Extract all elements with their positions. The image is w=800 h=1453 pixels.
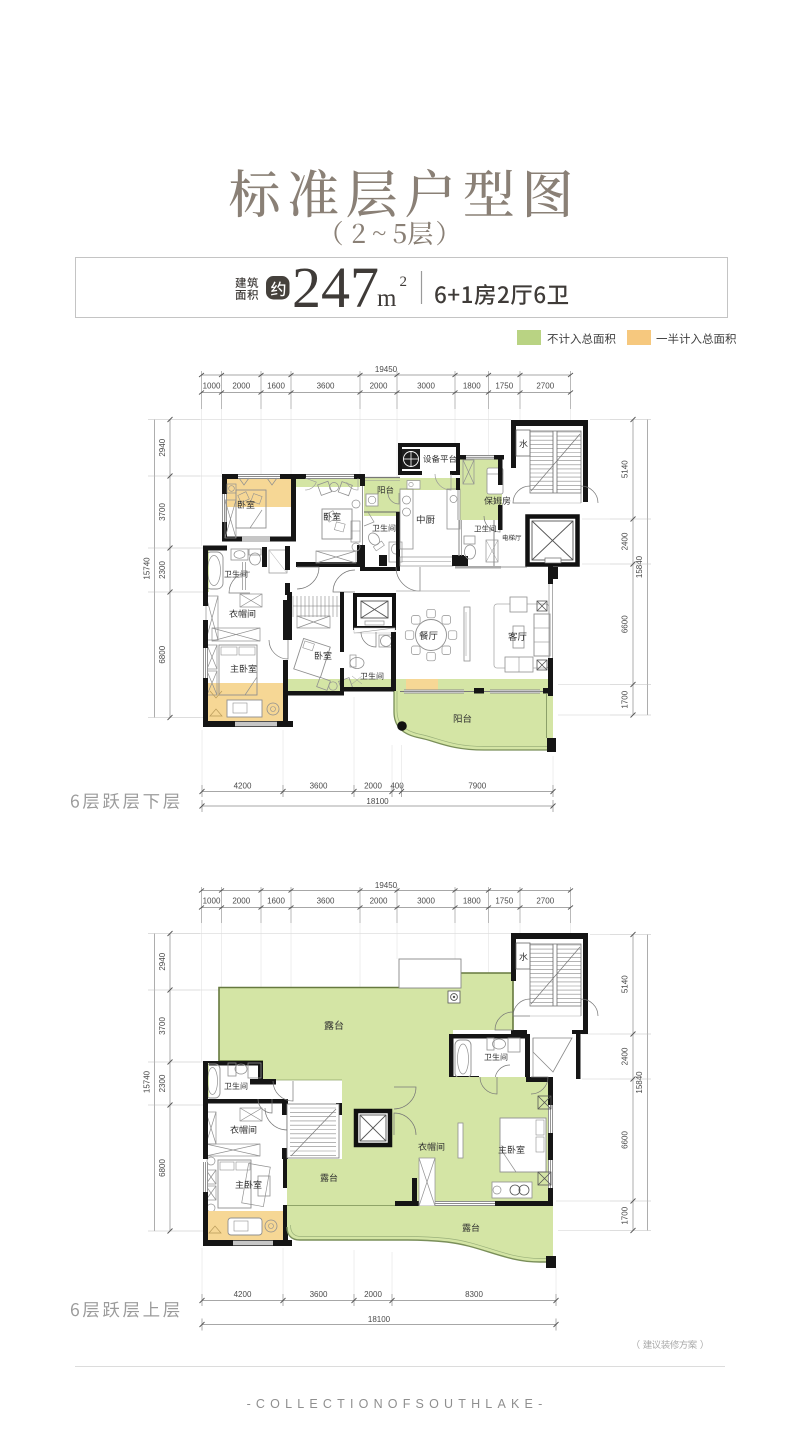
svg-text:2000: 2000	[370, 897, 388, 906]
svg-text:3700: 3700	[158, 503, 167, 521]
svg-text:15840: 15840	[635, 555, 644, 578]
svg-text:15740: 15740	[143, 557, 152, 580]
svg-text:3000: 3000	[417, 382, 435, 391]
svg-text:2300: 2300	[158, 1074, 167, 1092]
svg-text:1750: 1750	[495, 382, 513, 391]
svg-text:19450: 19450	[375, 881, 398, 890]
svg-text:6800: 6800	[158, 1159, 167, 1177]
svg-text:1700: 1700	[621, 690, 630, 708]
svg-text:15840: 15840	[635, 1071, 644, 1094]
svg-text:1000: 1000	[203, 382, 221, 391]
svg-text:2000: 2000	[364, 1290, 382, 1299]
svg-text:5140: 5140	[621, 460, 630, 478]
svg-text:1600: 1600	[267, 897, 285, 906]
svg-text:-COLLECTIONOFSOUTHLAKE-: -COLLECTIONOFSOUTHLAKE-	[247, 1397, 548, 1411]
svg-text:4200: 4200	[234, 782, 252, 791]
svg-text:8300: 8300	[465, 1290, 483, 1299]
svg-text:3000: 3000	[417, 897, 435, 906]
svg-text:2940: 2940	[158, 952, 167, 970]
svg-text:4200: 4200	[234, 1290, 252, 1299]
svg-text:6600: 6600	[621, 615, 630, 633]
svg-text:18100: 18100	[368, 1315, 391, 1324]
svg-text:3600: 3600	[310, 782, 328, 791]
svg-text:2700: 2700	[536, 382, 554, 391]
svg-text:15740: 15740	[143, 1070, 152, 1093]
svg-text:1800: 1800	[463, 382, 481, 391]
svg-text:2300: 2300	[158, 561, 167, 579]
svg-text:400: 400	[390, 782, 404, 791]
svg-text:2940: 2940	[158, 438, 167, 456]
svg-text:2000: 2000	[364, 782, 382, 791]
svg-text:3700: 3700	[158, 1017, 167, 1035]
svg-text:1000: 1000	[203, 897, 221, 906]
svg-text:2400: 2400	[621, 1047, 630, 1065]
svg-text:2700: 2700	[536, 897, 554, 906]
svg-text:5140: 5140	[621, 975, 630, 993]
svg-text:2000: 2000	[370, 382, 388, 391]
svg-text:m: m	[377, 285, 397, 312]
svg-text:1600: 1600	[267, 382, 285, 391]
svg-text:18100: 18100	[366, 797, 389, 806]
svg-text:19450: 19450	[375, 365, 398, 374]
svg-text:3600: 3600	[310, 1290, 328, 1299]
svg-text:6600: 6600	[621, 1131, 630, 1149]
svg-text:2: 2	[400, 274, 408, 290]
svg-text:6800: 6800	[158, 645, 167, 663]
svg-text:7900: 7900	[468, 782, 486, 791]
svg-text:3600: 3600	[317, 897, 335, 906]
svg-text:2000: 2000	[232, 897, 250, 906]
svg-text:1750: 1750	[495, 897, 513, 906]
svg-text:247: 247	[292, 255, 379, 320]
svg-text:1700: 1700	[621, 1206, 630, 1224]
svg-text:2400: 2400	[621, 532, 630, 550]
svg-text:1800: 1800	[463, 897, 481, 906]
svg-text:3600: 3600	[317, 382, 335, 391]
svg-text:2000: 2000	[232, 382, 250, 391]
